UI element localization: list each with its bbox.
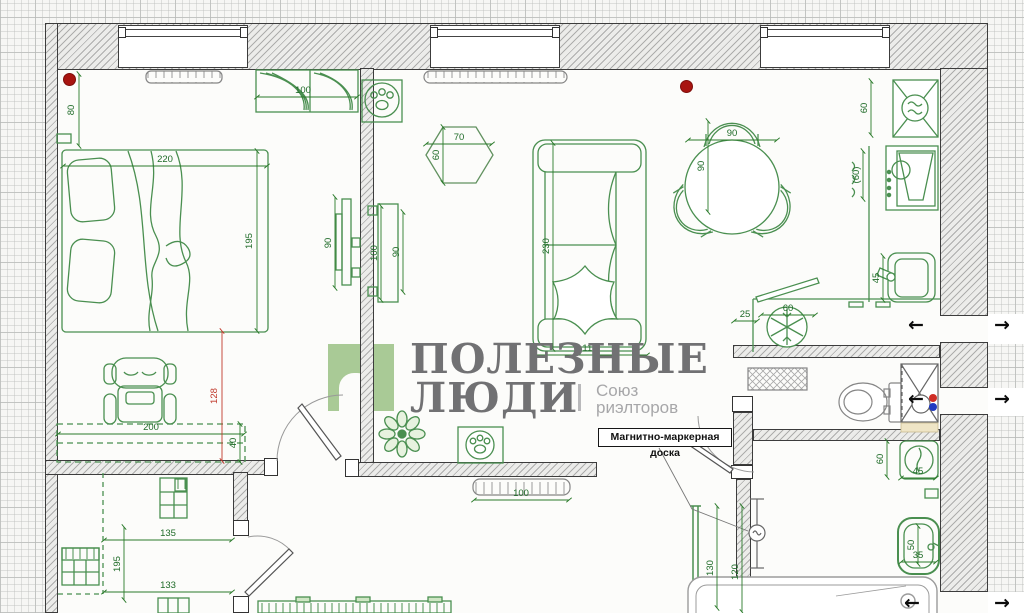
- arrow-right-icon: →: [994, 316, 1010, 335]
- arrow-right-icon: →: [994, 390, 1010, 409]
- dimension-label: 200: [143, 422, 159, 433]
- dimension-label: 70: [454, 132, 465, 143]
- logo-divider-bar: [578, 384, 581, 411]
- logo-subtitle-line2: риэлторов: [596, 399, 678, 416]
- dimension-label: 100: [513, 488, 529, 499]
- bathroom-sink: [898, 518, 939, 574]
- wardrobe-dashed-zone: [58, 473, 103, 594]
- dimension-label: 60: [431, 150, 442, 161]
- wardrobe-cabinet-a: [160, 478, 187, 518]
- dimension-label: 90: [727, 128, 738, 139]
- arrow-left-icon: ←: [908, 390, 924, 409]
- door-entry-wardrobe: [245, 536, 293, 596]
- bathtub: [688, 577, 937, 613]
- dimension-label: 100: [369, 245, 380, 261]
- dimension-label: 90: [391, 247, 402, 258]
- dimension-label: 195: [112, 556, 123, 572]
- red-marker-dot: [63, 73, 76, 86]
- hall-wardrobe-hangers: [258, 597, 451, 613]
- dimension-label: 100: [295, 85, 311, 96]
- dimension-label: 133: [160, 580, 176, 591]
- pocket-door: [749, 499, 765, 568]
- toilet: [839, 383, 902, 422]
- dimension-label: 60: [875, 454, 886, 465]
- dimension-label: 45: [871, 273, 882, 284]
- shaft-access-panel: [901, 423, 938, 432]
- tv-bedroom: [336, 199, 360, 285]
- logo-subtitle-line1: Союз: [596, 382, 638, 399]
- logo-title-line2: ЛЮДИ: [410, 378, 578, 419]
- dimension-label: 90: [696, 161, 707, 172]
- wardrobe-cabinet-b: [62, 548, 99, 585]
- dimension-label: 45: [913, 466, 924, 477]
- dimension-label: 90: [323, 238, 334, 249]
- dining-table: [663, 123, 801, 244]
- dimension-label: 80: [66, 105, 77, 116]
- kitchen-sink: [877, 253, 935, 302]
- floor-mat: [748, 368, 807, 390]
- door-bedroom: [277, 395, 343, 461]
- bath-cabinet: [925, 489, 938, 498]
- dimension-label: 60: [859, 103, 870, 114]
- arrow-left-icon: ←: [908, 316, 924, 335]
- pet-bowl: [362, 80, 402, 122]
- dimension-label: 35: [913, 550, 924, 561]
- pet-house: [458, 427, 503, 463]
- hall-cabinet-small: [158, 598, 189, 613]
- dimension-label: 60: [783, 303, 794, 314]
- dimension-label: (60): [851, 167, 862, 184]
- dimension-label: 120: [730, 564, 741, 580]
- dimension-label: 220: [157, 154, 173, 165]
- bed: [62, 150, 268, 332]
- dimension-label: 230: [541, 238, 552, 254]
- plan-drawing: 8022019510090200401281351951337060100902…: [0, 0, 1024, 613]
- dimension-label: 128: [209, 388, 220, 404]
- red-marker-dot: [680, 80, 693, 93]
- dimension-label: 25: [740, 309, 751, 320]
- dimension-label: 135: [160, 528, 176, 539]
- dimension-label: 50: [906, 540, 917, 551]
- hot-water-dot: [929, 394, 937, 402]
- dimension-label: 130: [705, 560, 716, 576]
- dimension-label: 40: [228, 438, 239, 449]
- arrow-right-icon: →: [994, 594, 1010, 613]
- cold-water-dot: [929, 403, 937, 411]
- arrow-left-icon: ←: [904, 594, 920, 613]
- radiator: [146, 71, 570, 495]
- wall-lamp: [57, 134, 71, 143]
- office-chair: [104, 358, 176, 424]
- floor-plan-canvas: 8022019510090200401281351951337060100902…: [0, 0, 1024, 613]
- dimension-label: 195: [244, 233, 255, 249]
- kitchen-hob: [893, 80, 938, 137]
- marker-board-label: Магнитно-маркерная доска: [598, 428, 732, 447]
